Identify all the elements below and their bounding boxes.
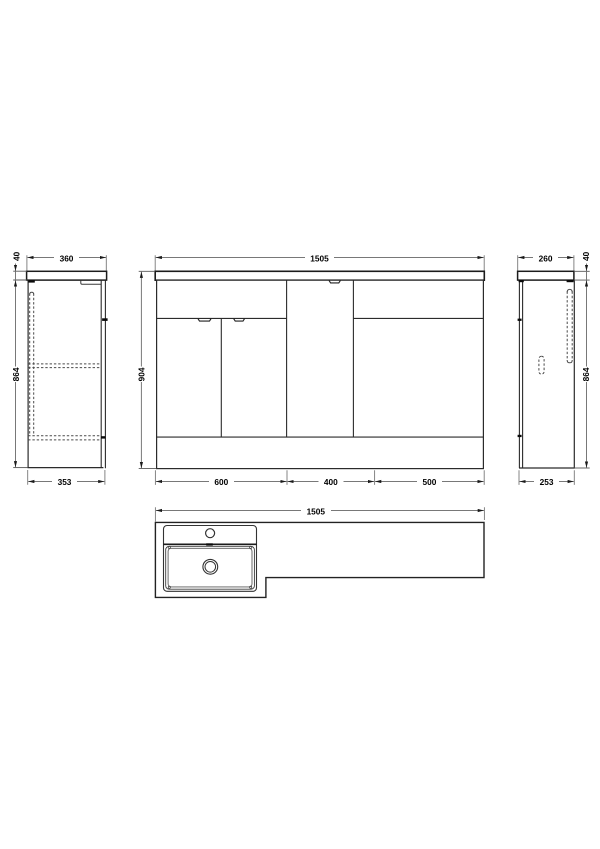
svg-text:864: 864 <box>11 367 21 381</box>
svg-text:360: 360 <box>60 253 74 263</box>
svg-text:40: 40 <box>12 251 22 261</box>
svg-text:1505: 1505 <box>310 253 329 263</box>
svg-text:40: 40 <box>581 251 591 261</box>
svg-text:904: 904 <box>137 367 147 381</box>
svg-text:1505: 1505 <box>307 506 326 516</box>
svg-text:600: 600 <box>214 477 228 487</box>
svg-text:500: 500 <box>422 477 436 487</box>
svg-text:260: 260 <box>539 253 553 263</box>
svg-text:400: 400 <box>324 477 338 487</box>
svg-text:353: 353 <box>58 477 72 487</box>
svg-text:253: 253 <box>540 477 554 487</box>
svg-text:864: 864 <box>581 367 591 381</box>
